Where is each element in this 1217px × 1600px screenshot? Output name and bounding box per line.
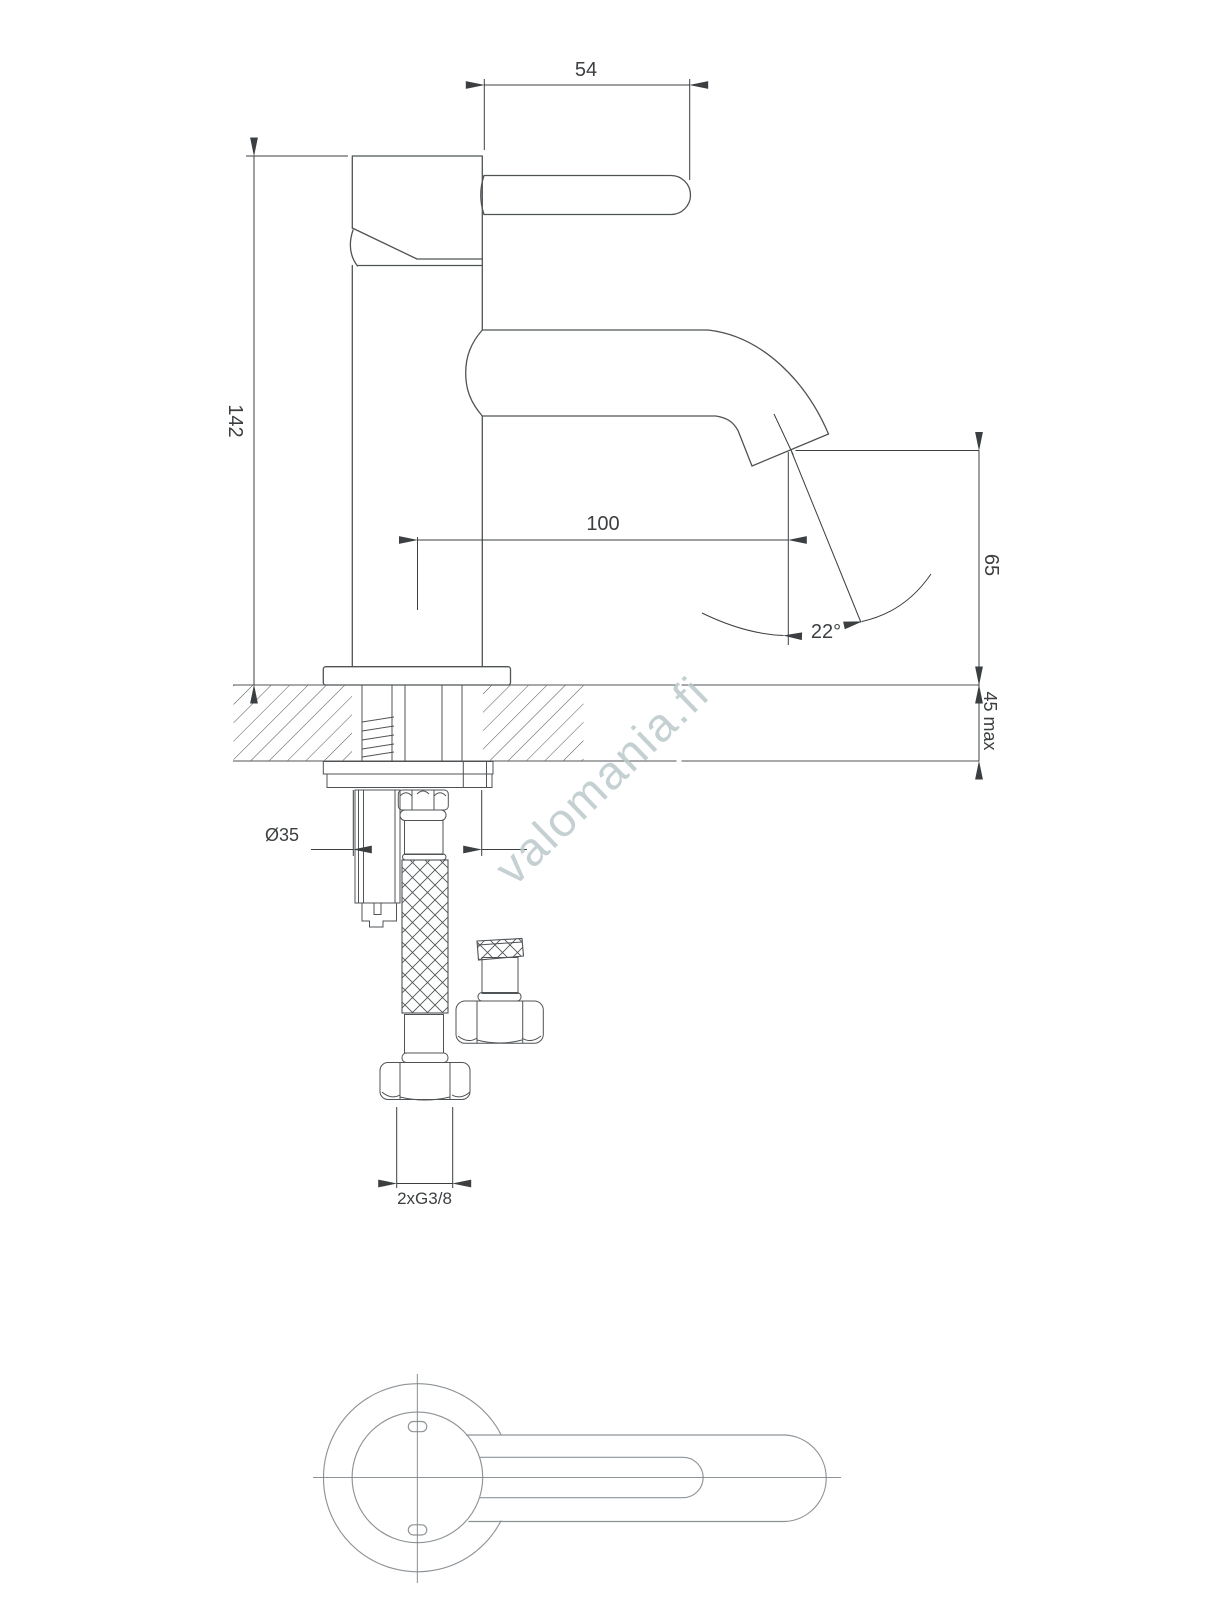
- dim-label-100: 100: [586, 513, 619, 535]
- handle-cap-chamfer: [352, 228, 482, 259]
- hose-collar-left: [402, 1053, 448, 1063]
- dim-label-d35: Ø35: [265, 825, 299, 845]
- handle-cap-outline: [352, 156, 482, 330]
- ext-lines-d35: [353, 790, 481, 856]
- hose-neck-left: [405, 1015, 444, 1054]
- dimension-spout-reach: 100: [418, 513, 789, 610]
- dim-label-65: 65: [980, 554, 1002, 576]
- hose-nut-right-facets: [458, 1001, 541, 1043]
- top-view: [313, 1374, 841, 1583]
- dimension-deck-thickness: 45 max: [979, 685, 1000, 761]
- angle-arc-right: [862, 574, 931, 622]
- braided-hose-right: [477, 939, 524, 961]
- dim-label-g38: 2xG3/8: [397, 1189, 452, 1208]
- body-right-edge: [466, 330, 483, 667]
- top-view-lever-outline: [466, 1435, 826, 1522]
- hatch-right-block: [483, 686, 584, 761]
- base-flange: [323, 667, 510, 685]
- ext-lines-54: [484, 79, 689, 180]
- spout-bottom-edge: [482, 416, 752, 466]
- lever-side-outline: [484, 176, 691, 215]
- aerator-normal-short: [774, 414, 793, 455]
- dimension-supply-connection: 2xG3/8: [397, 1107, 453, 1208]
- threaded-rod-lines: [362, 717, 394, 757]
- dim-label-22deg: 22°: [811, 621, 841, 643]
- dim-label-45max: 45 max: [980, 691, 1000, 750]
- handle-pivot-arc: [350, 230, 357, 266]
- hose-collar-1: [400, 810, 446, 821]
- hose-nut-left: [380, 1063, 470, 1100]
- dimension-hole-diameter: Ø35: [265, 790, 527, 856]
- dimension-total-height: 142: [224, 156, 348, 685]
- hose-nut-left-facets: [382, 1063, 470, 1101]
- dimension-stream-angle: 22°: [702, 574, 931, 643]
- dim-label-54: 54: [575, 59, 597, 81]
- hose-nut-right: [456, 1001, 543, 1043]
- lock-washer-upper: [323, 762, 493, 775]
- supply-hoses: [380, 860, 543, 1100]
- stream-construction: [774, 414, 861, 645]
- hose-neck-right: [482, 958, 518, 994]
- dimension-handle-length: 54: [484, 59, 689, 180]
- hose-ferrule-1: [405, 821, 444, 855]
- valve-housing-shading: [359, 790, 396, 903]
- jam-nut-facets: [400, 790, 446, 810]
- ext-lines-g38: [397, 1107, 453, 1188]
- angle-arc-left: [702, 613, 784, 636]
- lock-washer-lower: [327, 774, 492, 788]
- side-view-faucet: [323, 156, 828, 685]
- hatch-left-block: [234, 686, 353, 761]
- shank-lines-in-hole: [362, 686, 462, 762]
- valve-housing: [355, 790, 400, 903]
- dim-label-142: 142: [224, 404, 246, 437]
- faucet-dimension-drawing: 54 142 100 65 45 max 22° Ø35 2xG: [0, 0, 1217, 1600]
- technical-drawing-page: 54 142 100 65 45 max 22° Ø35 2xG: [0, 0, 1217, 1600]
- braided-hose-left: [402, 860, 448, 1013]
- stream-direction-line: [792, 452, 862, 623]
- valve-housing-foot: [362, 903, 397, 927]
- dimension-outlet-height: 65: [796, 451, 1003, 686]
